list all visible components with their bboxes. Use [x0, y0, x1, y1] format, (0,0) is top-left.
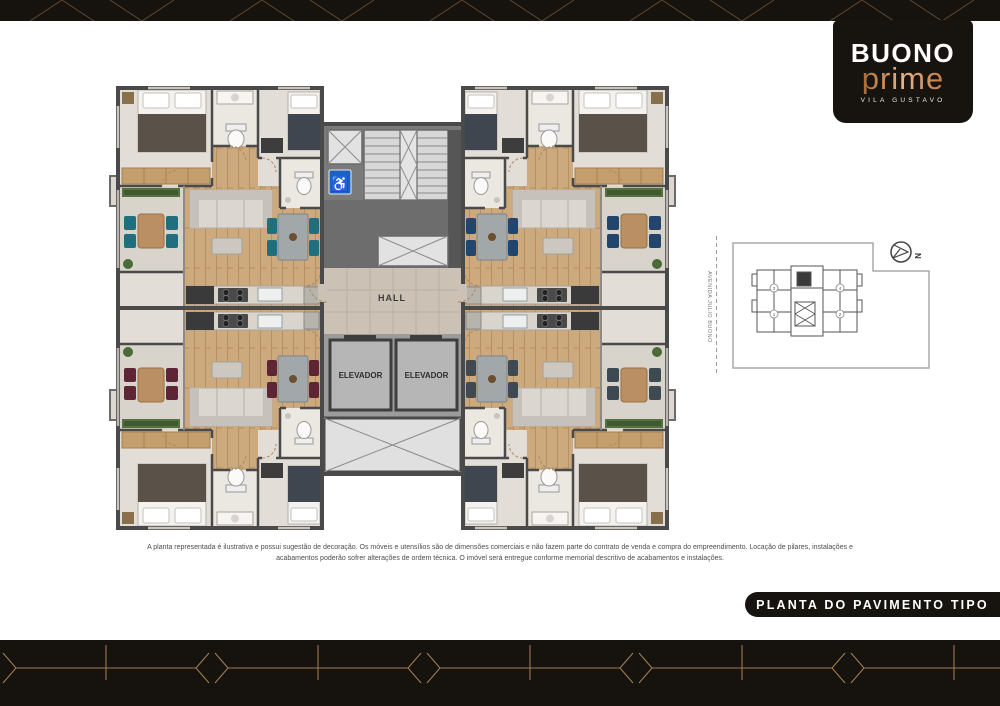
- disclaimer-line-2: acabamentos poderão sofrer alterações de…: [140, 553, 860, 564]
- apartment-unit-br: [460, 308, 667, 528]
- north-label: N: [913, 253, 922, 259]
- page-title: PLANTA DO PAVIMENTO TIPO: [756, 598, 989, 612]
- svg-text:♿: ♿: [331, 175, 350, 193]
- stair-hatch-top: [328, 130, 362, 164]
- elevator-label-right: ELEVADOR: [405, 371, 449, 380]
- stair-treads: [364, 130, 448, 200]
- keyplan: AVENIDA JULIO BUONO N: [706, 236, 929, 374]
- shaft-hatch: [324, 418, 461, 472]
- mini-building: [752, 266, 862, 336]
- disclaimer-line-1: A planta representada é ilustrativa e po…: [140, 542, 860, 553]
- main-floorplan: ♿ HALL: [110, 88, 675, 528]
- hall-label: HALL: [378, 293, 406, 303]
- central-core: ♿ HALL: [309, 124, 476, 474]
- elevator-label-left: ELEVADOR: [339, 371, 383, 380]
- north-arrow-icon: N: [891, 242, 922, 262]
- street-label: AVENIDA JULIO BUONO: [706, 271, 712, 343]
- brand-name-bottom: prime: [862, 64, 945, 94]
- apartment-unit-tr: [460, 88, 667, 308]
- hall: HALL: [324, 268, 461, 334]
- brand-badge: BUONO prime VILA GUSTAVO: [833, 20, 973, 123]
- page-root: BUONO prime VILA GUSTAVO: [0, 0, 1000, 706]
- stair-hatch-landing: [378, 236, 448, 266]
- apartment-unit-tl: [118, 88, 325, 308]
- apartment-unit-bl: [118, 308, 325, 528]
- duct: [448, 130, 461, 268]
- footer-title-bar: PLANTA DO PAVIMENTO TIPO: [745, 592, 1000, 617]
- wheelchair-icon: ♿: [329, 170, 351, 194]
- disclaimer: A planta representada é ilustrativa e po…: [140, 542, 860, 564]
- brand-subtitle: VILA GUSTAVO: [861, 97, 946, 104]
- elevators: ELEVADOR ELEVADOR: [324, 334, 461, 418]
